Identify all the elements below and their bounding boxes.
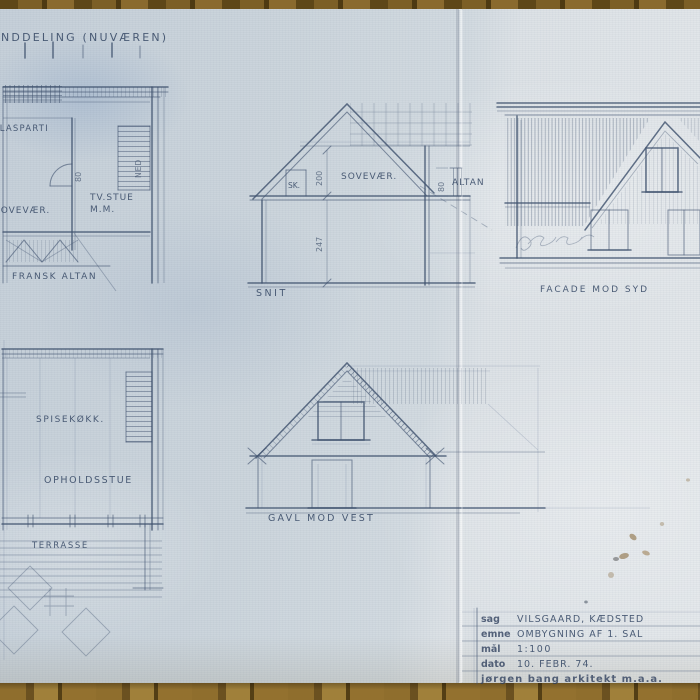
sheet-header: NDDELING (NUVÆREN) [1,31,168,58]
titleblock-key-emne: emne [481,629,511,640]
terrace-label: TERRASSE [31,541,89,551]
paving-diamond [62,608,110,656]
rafter-grid [350,103,472,146]
titleblock-key-maal: mål [481,644,501,655]
door-width-dim: 80 [74,172,83,182]
snit-label: SNIT [256,288,288,299]
sheet-title: NDDELING (NUVÆREN) [1,31,168,44]
paper-stains [584,478,690,603]
facade-south: FACADE MOD SYD [497,103,700,295]
architect-stamp: jørgen bang arkitekt m.a.a. [480,674,663,685]
stairs-lower-plan [126,372,152,442]
fransk-altan-label: FRANSK ALTAN [12,272,97,282]
titleblock-value-maal: 1:100 [517,644,552,655]
paving-diamond [0,606,38,654]
titleblock-key-dato: dato [481,659,506,670]
titleblock-key-sag: sag [481,614,500,625]
pencil-drawing-layer: NDDELING (NUVÆREN) NED [0,0,700,700]
title-block: sag VILSGAARD, KÆDSTED emne OMBYGNING AF… [462,608,700,685]
glasparti-label: GLASPARTI [0,124,49,134]
scale-bar-ticks [25,42,140,58]
french-balcony-hatch [3,240,110,266]
living-room-label: OPHOLDSSTUE [44,475,133,486]
closet-sk: SK. [286,170,306,196]
gable-west: GAVL MOD VEST [246,363,650,524]
sovevaer-plan-label: SOVEVÆR. [0,206,50,216]
kitchen-label: SPISEKØKK. [36,414,105,425]
dim-247: 247 [315,237,324,252]
sovevaer-snit-label: SOVEVÆR. [341,172,397,182]
construction-hatch [352,368,488,404]
stairs-ned-label: NED [134,159,143,178]
cross-section-snit: 200 247 80 SK. SOVEVÆR. ALTAN SNIT [248,103,492,299]
door-swing: 80 [50,164,83,186]
upper-floor-plan: NED 80 GLASPARTI TV.STUE M.M. SOVEVÆR. F… [0,85,168,291]
titleblock-value-sag: VILSGAARD, KÆDSTED [517,614,644,625]
titleblock-value-emne: OMBYGNING AF 1. SAL [517,629,643,640]
titleblock-value-dato: 10. FEBR. 74. [517,659,594,670]
gable-label: GAVL MOD VEST [268,513,375,524]
pencil-signature-scribble [516,235,594,250]
sk-label: SK. [288,181,300,190]
dim-200: 200 [315,171,324,186]
gable-door [308,460,356,508]
facade-label: FACADE MOD SYD [540,285,649,295]
altan-label: ALTAN [452,178,485,188]
dim-80-altan: 80 [437,182,446,192]
window-mullions [28,515,145,527]
lower-floor-plan: SPISEKØKK. OPHOLDSSTUE TERRASSE [0,340,163,660]
tvstue-label: TV.STUE [89,193,134,203]
tvstue-mm-label: M.M. [90,205,115,215]
stairs-up-plan: NED [118,126,150,190]
